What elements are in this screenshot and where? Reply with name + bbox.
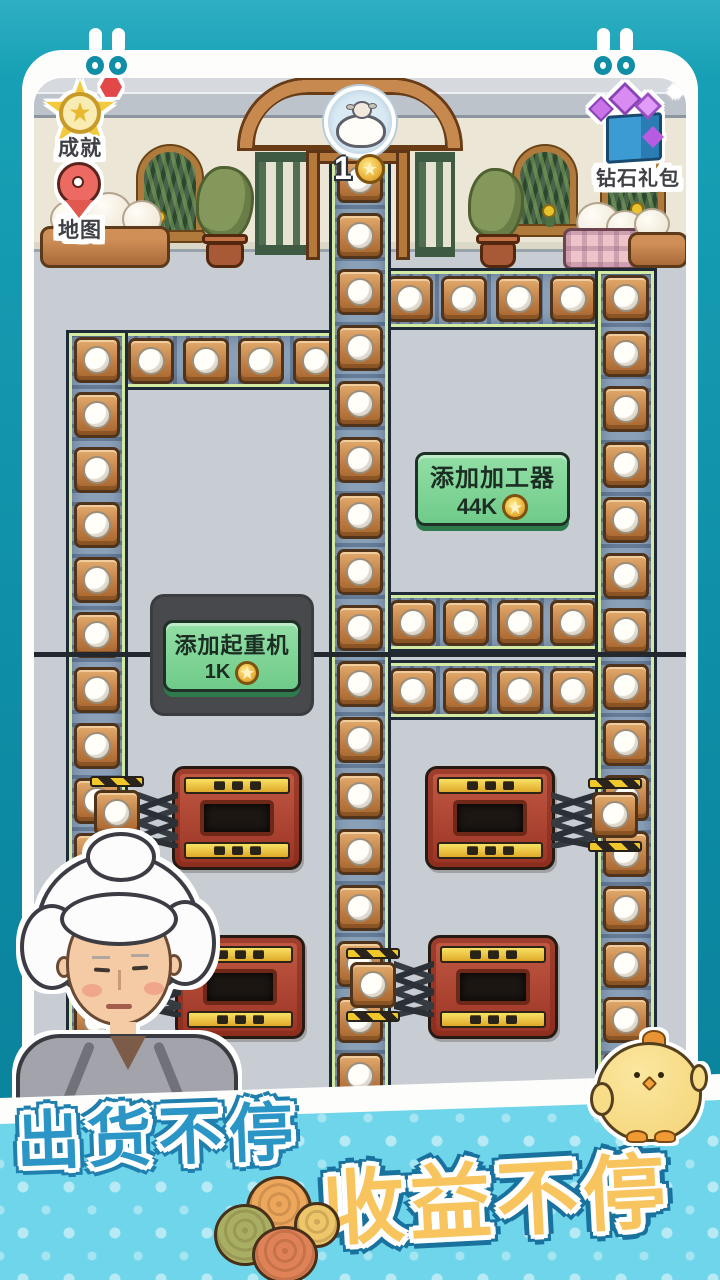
cotton-crate — [443, 600, 489, 646]
cotton-crate — [390, 600, 436, 646]
cotton-ball — [103, 799, 131, 827]
add-processor-button[interactable]: 添加加工器 44K — [415, 452, 570, 526]
chick-tail — [690, 1064, 708, 1092]
cotton-ball — [83, 456, 111, 484]
cotton-ball — [399, 677, 427, 705]
machine-screen — [456, 969, 530, 1005]
processor-machine-right-top[interactable] — [425, 766, 555, 870]
sheep-ear — [346, 104, 355, 110]
add-processor-label: 添加加工器 — [430, 458, 555, 493]
cotton-ball — [83, 566, 111, 594]
cotton-ball — [612, 562, 640, 590]
grandma-brow — [92, 956, 110, 959]
cotton-ball — [612, 395, 640, 423]
clamped-crate — [592, 792, 638, 838]
scissor-arm — [394, 959, 434, 1017]
cotton-crate — [550, 668, 596, 714]
queue-count-badge: 1 — [334, 150, 385, 187]
slogan-shipping: 出货不停 — [14, 1081, 301, 1183]
cotton-crate — [337, 213, 383, 259]
chick-foot — [626, 1130, 648, 1143]
cotton-ball — [396, 285, 424, 313]
cotton-crate — [337, 717, 383, 763]
sheep-icon — [336, 114, 386, 148]
cotton-crate — [337, 437, 383, 483]
cotton-crate — [74, 723, 120, 769]
diamond-pack-button[interactable]: ✦ 钻石礼包 — [586, 84, 690, 188]
room-divider-line — [33, 652, 687, 657]
cotton-ball — [612, 451, 640, 479]
cotton-ball — [346, 446, 374, 474]
cotton-ball — [559, 677, 587, 705]
chick-eye — [634, 1072, 640, 1078]
cotton-ball — [612, 284, 640, 312]
cotton-crate — [550, 276, 596, 322]
machine-screen — [453, 800, 527, 836]
staple-decoration — [617, 28, 639, 80]
cotton-crate — [387, 276, 433, 322]
add-processor-price: 44K — [457, 494, 497, 520]
cotton-ball — [192, 347, 220, 375]
cotton-ball — [346, 334, 374, 362]
cotton-crate — [74, 392, 120, 438]
cotton-crate — [238, 338, 284, 384]
cotton-crate — [337, 269, 383, 315]
staple-decoration — [594, 28, 616, 80]
machine-bottom-panel — [440, 1011, 546, 1028]
cotton-ball — [346, 390, 374, 418]
cotton-crate — [337, 549, 383, 595]
cotton-crate — [183, 338, 229, 384]
cotton-ball — [346, 838, 374, 866]
cotton-ball — [450, 285, 478, 313]
clamp-hazard-bar — [346, 1011, 400, 1022]
cotton-crate — [603, 331, 649, 377]
cotton-crate — [443, 668, 489, 714]
cotton-crate — [603, 886, 649, 932]
cotton-tray-right — [628, 232, 688, 268]
machine-top-panel — [437, 777, 543, 794]
cotton-crate — [550, 600, 596, 646]
cotton-ball — [83, 732, 111, 760]
cotton-crate — [390, 668, 436, 714]
door-jamb-left — [306, 150, 320, 260]
add-crane-price: 1K — [205, 661, 231, 684]
cotton-ball — [83, 511, 111, 539]
cotton-ball — [612, 951, 640, 979]
machine-bottom-panel — [437, 842, 543, 859]
cotton-crate — [337, 381, 383, 427]
cotton-ball — [612, 340, 640, 368]
cotton-ball — [612, 895, 640, 923]
cotton-crate — [128, 338, 174, 384]
cotton-crate — [603, 553, 649, 599]
cotton-crate — [603, 442, 649, 488]
cotton-ball — [83, 401, 111, 429]
staple-decoration — [109, 28, 131, 80]
cotton-ball — [452, 677, 480, 705]
cotton-crate — [497, 668, 543, 714]
achievement-button[interactable]: 成就 — [38, 80, 122, 162]
diamond-pack-label: 钻石礼包 — [582, 162, 694, 191]
clamp-hazard-bar — [588, 778, 642, 789]
cotton-ball — [346, 614, 374, 642]
yarn-balls — [210, 1174, 340, 1280]
cotton-ball — [346, 222, 374, 250]
grandma-hair-bun — [86, 832, 156, 882]
clamp-hazard-bar — [588, 841, 642, 852]
machine-top-panel — [440, 946, 546, 963]
cotton-ball — [83, 676, 111, 704]
yarn-ball-red — [252, 1226, 318, 1280]
cotton-crate — [337, 605, 383, 651]
cotton-crate — [74, 502, 120, 548]
processor-machine-right-bottom[interactable] — [428, 935, 558, 1039]
cotton-ball — [346, 502, 374, 530]
coin-icon — [502, 494, 528, 520]
cotton-ball — [83, 621, 111, 649]
cotton-crate — [603, 275, 649, 321]
chick-foot — [654, 1130, 676, 1143]
diamond-icon — [612, 86, 638, 112]
cotton-ball — [247, 347, 275, 375]
cotton-ball — [346, 278, 374, 306]
clamp-hazard-bar — [346, 948, 400, 959]
cotton-ball — [359, 971, 387, 999]
map-pin-dot — [72, 176, 84, 188]
achievement-label: 成就 — [38, 132, 122, 162]
queue-count: 1 — [334, 150, 352, 187]
cotton-crate — [603, 942, 649, 988]
cotton-crate — [74, 337, 120, 383]
cotton-crate — [337, 661, 383, 707]
cotton-crate — [74, 447, 120, 493]
chick-character — [590, 1026, 718, 1150]
chick-eye — [658, 1072, 664, 1078]
cotton-ball — [346, 726, 374, 754]
cotton-ball — [137, 347, 165, 375]
flower-pot-icon — [542, 204, 556, 218]
cotton-crate — [337, 885, 383, 931]
cotton-ball — [506, 677, 534, 705]
cotton-ball — [601, 801, 629, 829]
chick-wing — [590, 1082, 614, 1116]
map-button[interactable]: 地图 — [42, 160, 118, 238]
game-screen: 1 添加加工器 44K 添加起重机 1K 成就 — [0, 0, 720, 1280]
sheep-medallion — [324, 86, 396, 158]
conveyor-belt-right-vertical — [595, 268, 657, 1106]
grandma-cheek — [82, 984, 102, 997]
cotton-crate — [496, 276, 542, 322]
cotton-crate — [603, 497, 649, 543]
cotton-crate — [603, 664, 649, 710]
add-crane-label: 添加起重机 — [174, 628, 289, 660]
plant-pot — [480, 242, 516, 268]
cotton-crate — [74, 557, 120, 603]
cotton-ball — [506, 609, 534, 637]
grandma-mouth — [106, 1004, 132, 1009]
cotton-crate — [603, 720, 649, 766]
plant-pot — [206, 242, 244, 268]
cotton-ball — [302, 347, 330, 375]
cotton-ball — [452, 609, 480, 637]
cotton-ball — [83, 346, 111, 374]
grandma-cheek — [144, 982, 164, 995]
clamp-hazard-bar — [90, 776, 144, 787]
cotton-crate — [74, 667, 120, 713]
staple-decoration — [86, 28, 108, 80]
cotton-ball — [612, 673, 640, 701]
cotton-crate — [337, 829, 383, 875]
map-label: 地图 — [42, 214, 118, 244]
cotton-ball — [612, 617, 640, 645]
scissor-arm — [551, 790, 596, 848]
cotton-ball — [559, 609, 587, 637]
cotton-crate — [603, 386, 649, 432]
grandma-nose — [118, 970, 121, 990]
cotton-ball — [559, 285, 587, 313]
cotton-ball — [399, 609, 427, 637]
machine-screen — [200, 800, 274, 836]
cotton-crate — [337, 493, 383, 539]
coin-icon — [355, 154, 385, 184]
cotton-ball — [612, 506, 640, 534]
add-crane-button[interactable]: 添加起重机 1K — [163, 620, 301, 692]
cotton-ball — [346, 894, 374, 922]
clamped-crate — [350, 962, 396, 1008]
folding-gate-right — [415, 152, 455, 257]
sheep-ear — [368, 103, 377, 109]
grandma-fringe — [60, 892, 178, 946]
potted-plant-leaves — [468, 168, 524, 240]
cotton-crate — [441, 276, 487, 322]
cotton-crate — [603, 608, 649, 654]
cotton-ball — [346, 558, 374, 586]
coin-icon — [235, 661, 259, 685]
clamped-crate — [94, 790, 140, 836]
cotton-crate — [337, 325, 383, 371]
cotton-ball — [505, 285, 533, 313]
grandma-brow — [131, 954, 149, 957]
cotton-ball — [346, 670, 374, 698]
machine-top-panel — [184, 777, 290, 794]
window-mid-right — [514, 146, 576, 232]
cotton-crate — [337, 773, 383, 819]
cotton-crate — [497, 600, 543, 646]
cotton-ball — [346, 782, 374, 810]
potted-plant-leaves — [196, 166, 254, 240]
cotton-ball — [612, 729, 640, 757]
door-jamb-right — [396, 150, 410, 260]
